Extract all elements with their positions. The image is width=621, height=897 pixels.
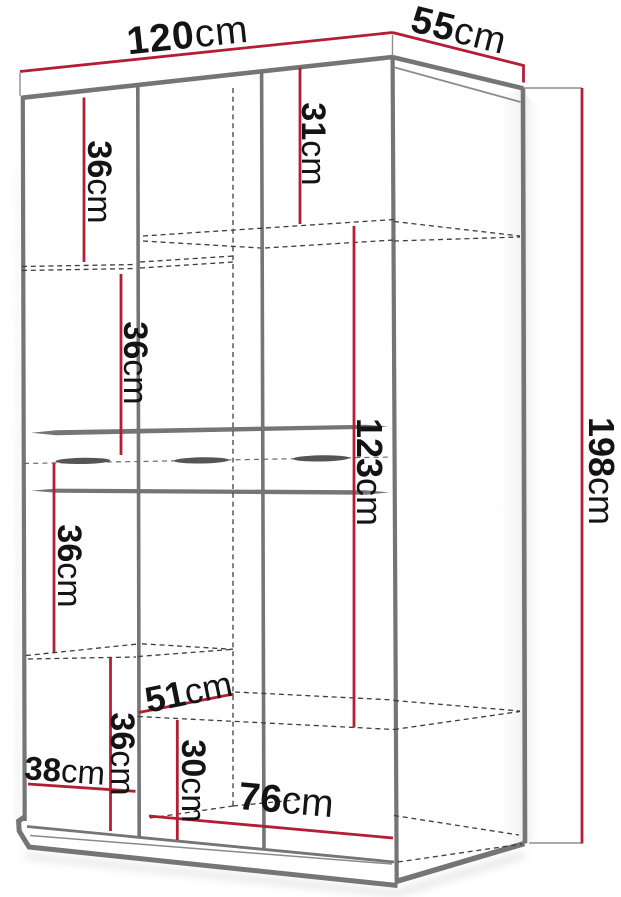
svg-text:36cm: 36cm	[50, 524, 88, 607]
svg-text:198cm: 198cm	[581, 417, 621, 525]
svg-text:30cm: 30cm	[174, 739, 212, 822]
svg-text:36cm: 36cm	[116, 321, 154, 404]
svg-text:51cm: 51cm	[141, 663, 235, 721]
svg-text:123cm: 123cm	[349, 418, 390, 526]
svg-text:31cm: 31cm	[294, 102, 332, 185]
svg-text:120cm: 120cm	[125, 8, 251, 64]
svg-text:36cm: 36cm	[103, 712, 141, 795]
svg-text:76cm: 76cm	[237, 775, 336, 826]
svg-text:36cm: 36cm	[80, 140, 118, 223]
svg-text:55cm: 55cm	[407, 0, 511, 63]
svg-text:38cm: 38cm	[23, 749, 106, 792]
